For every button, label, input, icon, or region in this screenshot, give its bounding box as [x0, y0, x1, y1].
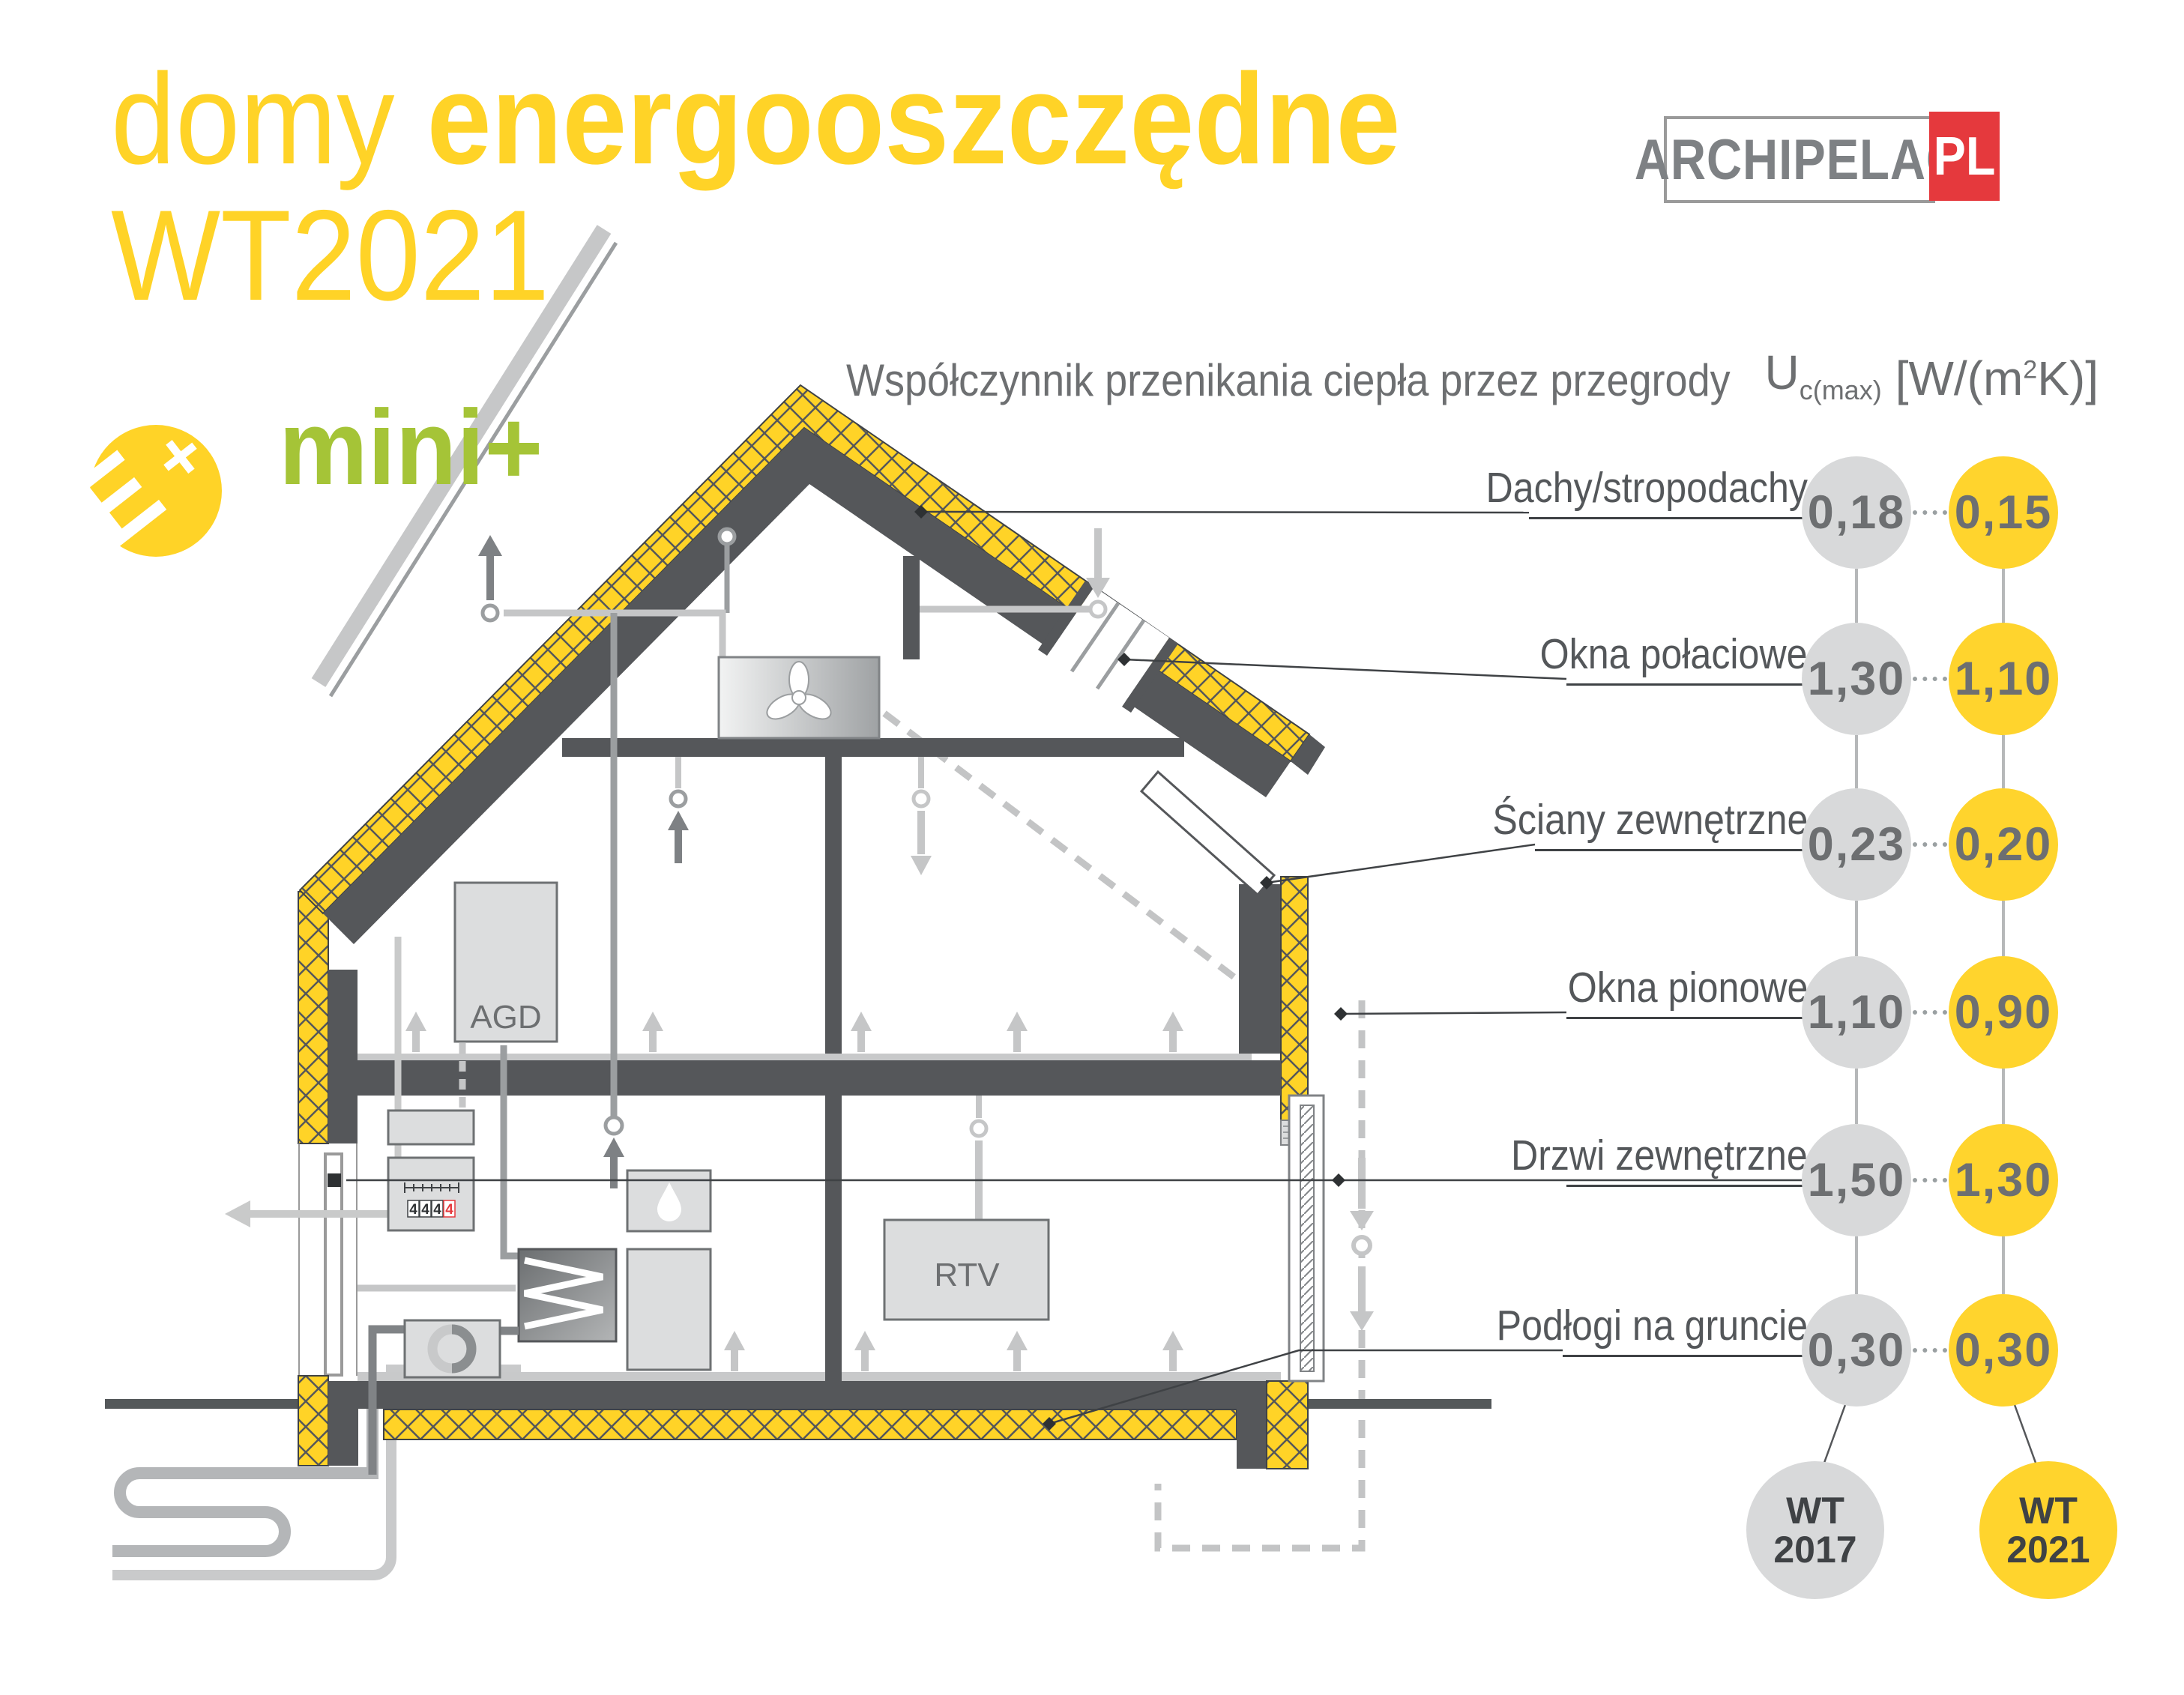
archipelag-logo: ARCHIPELAG — [1664, 116, 1935, 203]
intake-air-arrows — [1350, 1158, 1374, 1331]
ground-line-right — [1308, 1399, 1491, 1409]
underfloor-insulation — [384, 1410, 1237, 1439]
roof-vent-stub — [903, 556, 920, 659]
row-label: Podłogi na gruncie — [1563, 1292, 1808, 1357]
mid-floor-slab — [328, 1060, 1281, 1096]
page-title: domy energooszczędne WT2021 — [111, 51, 1401, 324]
ground-partition-wall — [825, 1096, 842, 1381]
exhaust-out-arrow-icon — [225, 1200, 250, 1227]
wt2017-value: 1,10 — [1802, 956, 1911, 1069]
power-connection-point — [328, 1173, 341, 1187]
row-label: Okna pionowe — [1566, 954, 1808, 1019]
row-label: Dachy/stropodachy — [1529, 454, 1808, 519]
svg-text:4: 4 — [409, 1202, 417, 1218]
wt2021-value: 1,30 — [1949, 1124, 2058, 1236]
wt2017-value: 1,30 — [1802, 623, 1911, 735]
wt2021-value: 0,20 — [1949, 788, 2058, 901]
electric-meter: 4 4 4 4 — [388, 1158, 474, 1230]
agd-label: AGD — [470, 999, 541, 1036]
rtv-label: RTV — [934, 1257, 1000, 1293]
archipelag-logo-pl: PL — [1929, 112, 2000, 201]
row-connector — [1913, 510, 1947, 515]
svg-text:4: 4 — [445, 1202, 453, 1218]
exhaust-arrow-icon — [478, 535, 502, 556]
wt2021-badge: WT2021 — [1979, 1461, 2117, 1599]
row-label: Ściany zewnętrzne — [1535, 786, 1808, 851]
washing-machine — [627, 1249, 711, 1370]
row-connector — [1913, 1178, 1947, 1182]
row-connector — [1913, 677, 1947, 681]
wt2017-badge: WT2017 — [1746, 1461, 1884, 1599]
svg-text:4: 4 — [421, 1202, 429, 1218]
table-header: Współczynnik przenikania ciepła przez pr… — [952, 339, 2099, 406]
wt2021-value: 0,15 — [1949, 456, 2058, 569]
row-label: Drzwi zewnętrzne — [1566, 1122, 1808, 1187]
upper-partition-wall — [825, 757, 842, 1054]
recuperator-unit — [719, 657, 879, 738]
row-connector — [1913, 1010, 1947, 1015]
svg-text:4: 4 — [433, 1202, 441, 1218]
fuse-box — [388, 1111, 474, 1144]
wt2021-value: 0,90 — [1949, 956, 2058, 1069]
eplus-logo: E + — [48, 412, 222, 572]
wt2017-value: 0,18 — [1802, 456, 1911, 569]
row-label: Okna połaciowe — [1566, 620, 1808, 686]
meter-counter: 4 4 4 4 — [408, 1200, 455, 1218]
mini-plus-logo: mini+ — [279, 387, 543, 510]
row-connector — [1913, 842, 1947, 847]
page-title-line2: WT2021 — [111, 187, 1401, 324]
left-window — [325, 1154, 342, 1375]
infographic-canvas: AGD RTV 4 4 4 4 — [0, 0, 2184, 1695]
upper-floor-finish — [358, 1054, 1252, 1061]
row-connector — [1913, 1348, 1947, 1353]
ground-line-left — [105, 1399, 298, 1409]
wt2017-value: 0,23 — [1802, 788, 1911, 901]
wt2017-value: 1,50 — [1802, 1124, 1911, 1236]
wt2021-value: 0,30 — [1949, 1294, 2058, 1407]
exterior-door — [1289, 1096, 1324, 1381]
wt-connectors — [1824, 1403, 2036, 1463]
ground-floor-slab — [328, 1381, 1281, 1409]
wt2017-value: 0,30 — [1802, 1294, 1911, 1407]
duct-joint-icon — [1354, 1237, 1370, 1254]
water-heater — [519, 1249, 616, 1341]
attic-ceiling-slab — [562, 738, 1184, 757]
eaves-edge — [1141, 772, 1274, 895]
wt2021-value: 1,10 — [1949, 623, 2058, 735]
left-exterior-wall — [298, 892, 358, 1376]
